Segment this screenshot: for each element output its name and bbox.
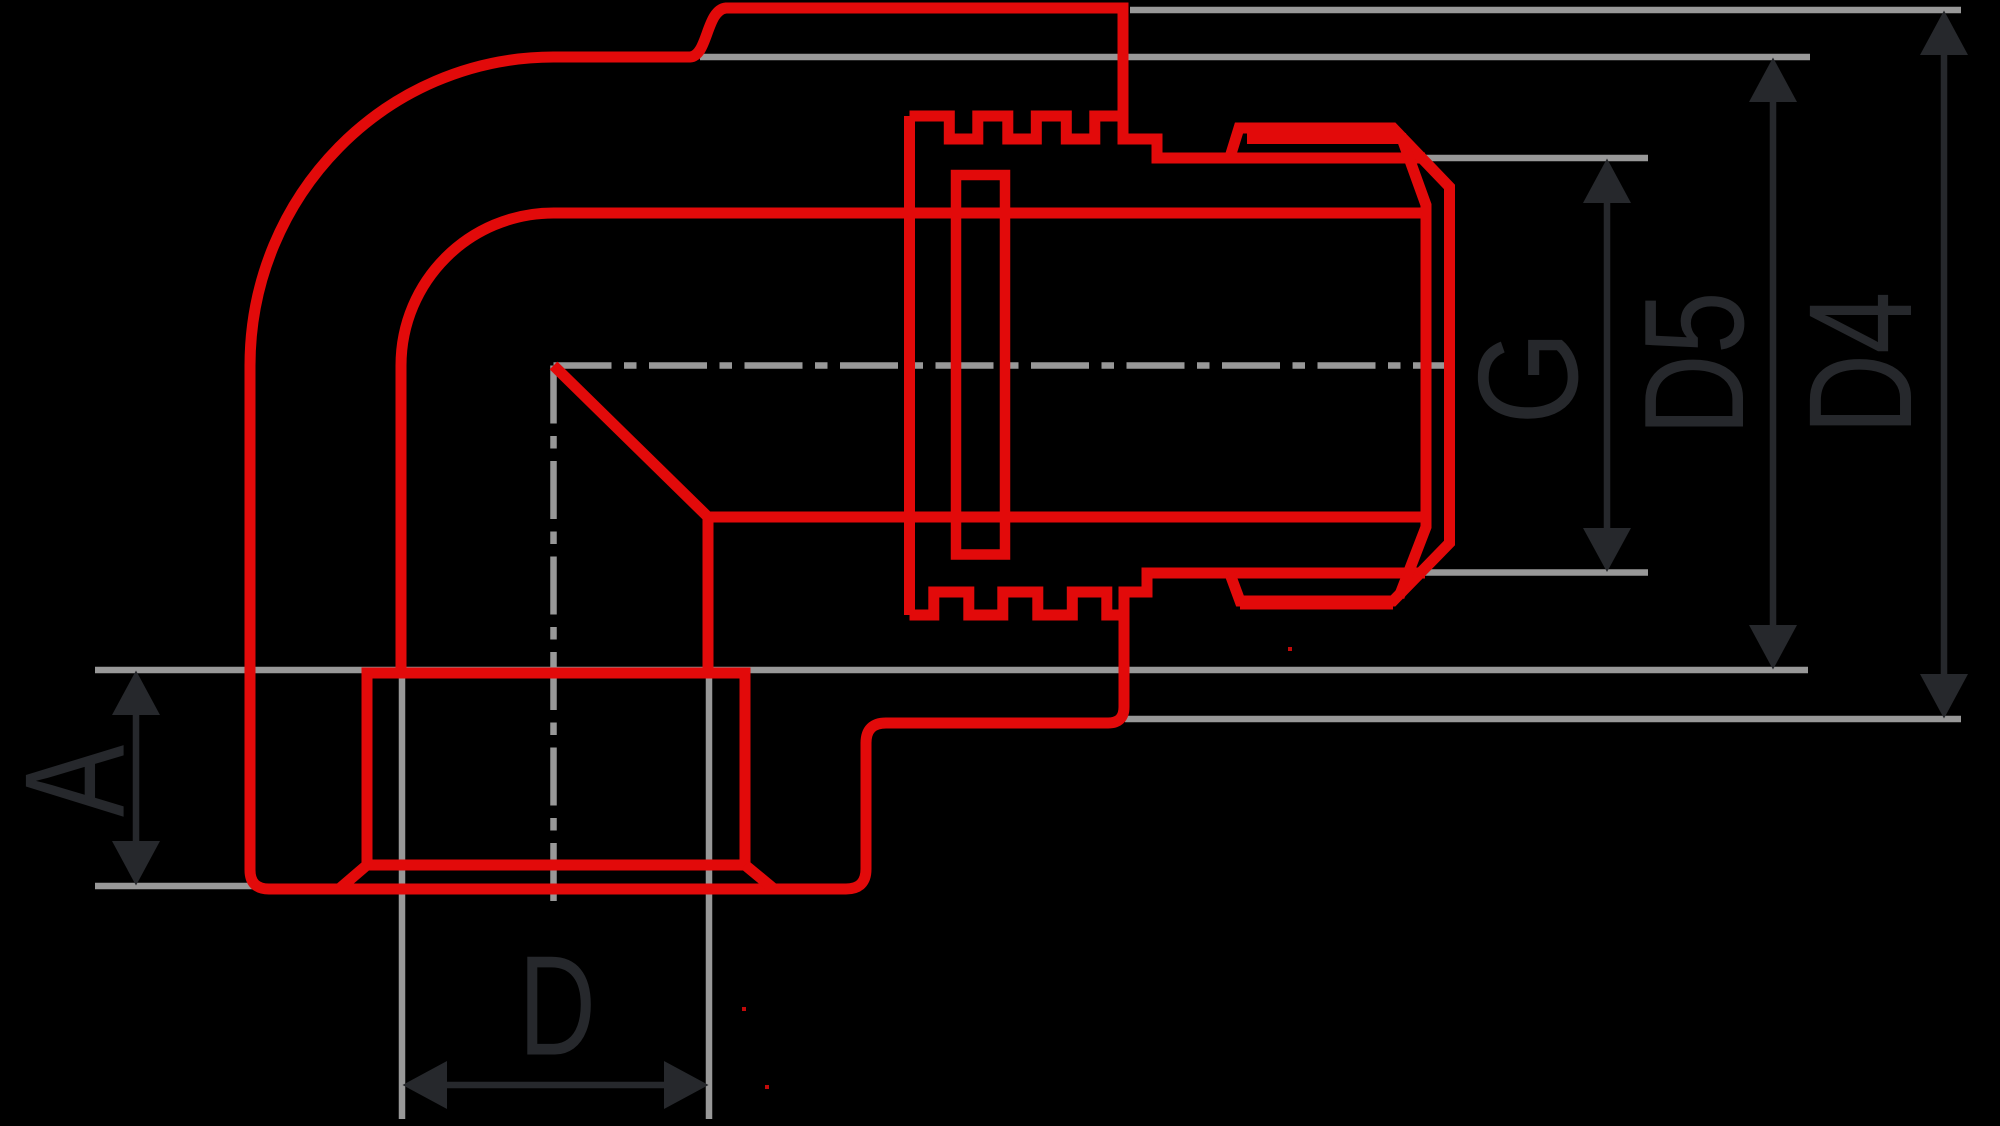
- svg-text:D4: D4: [1778, 292, 1942, 435]
- svg-text:A: A: [0, 745, 154, 817]
- svg-text:G: G: [1449, 331, 1607, 425]
- svg-text:D5: D5: [1616, 291, 1774, 435]
- svg-text:D: D: [519, 926, 596, 1085]
